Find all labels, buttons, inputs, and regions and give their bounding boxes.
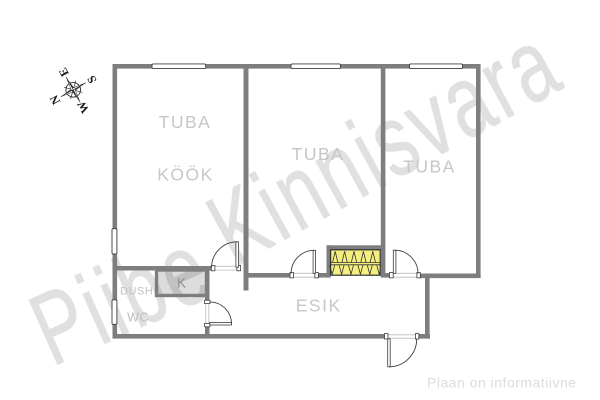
svg-text:DUSH: DUSH (120, 286, 153, 298)
svg-text:Plaan on informatiivne: Plaan on informatiivne (427, 375, 577, 391)
svg-text:TUBA: TUBA (292, 144, 345, 164)
svg-text:WC: WC (127, 311, 149, 325)
svg-text:K: K (177, 276, 186, 291)
svg-text:TUBA: TUBA (159, 112, 212, 132)
svg-text:TUBA: TUBA (403, 157, 456, 177)
svg-text:KÖÖK: KÖÖK (157, 165, 214, 185)
svg-text:ESIK: ESIK (296, 296, 342, 316)
